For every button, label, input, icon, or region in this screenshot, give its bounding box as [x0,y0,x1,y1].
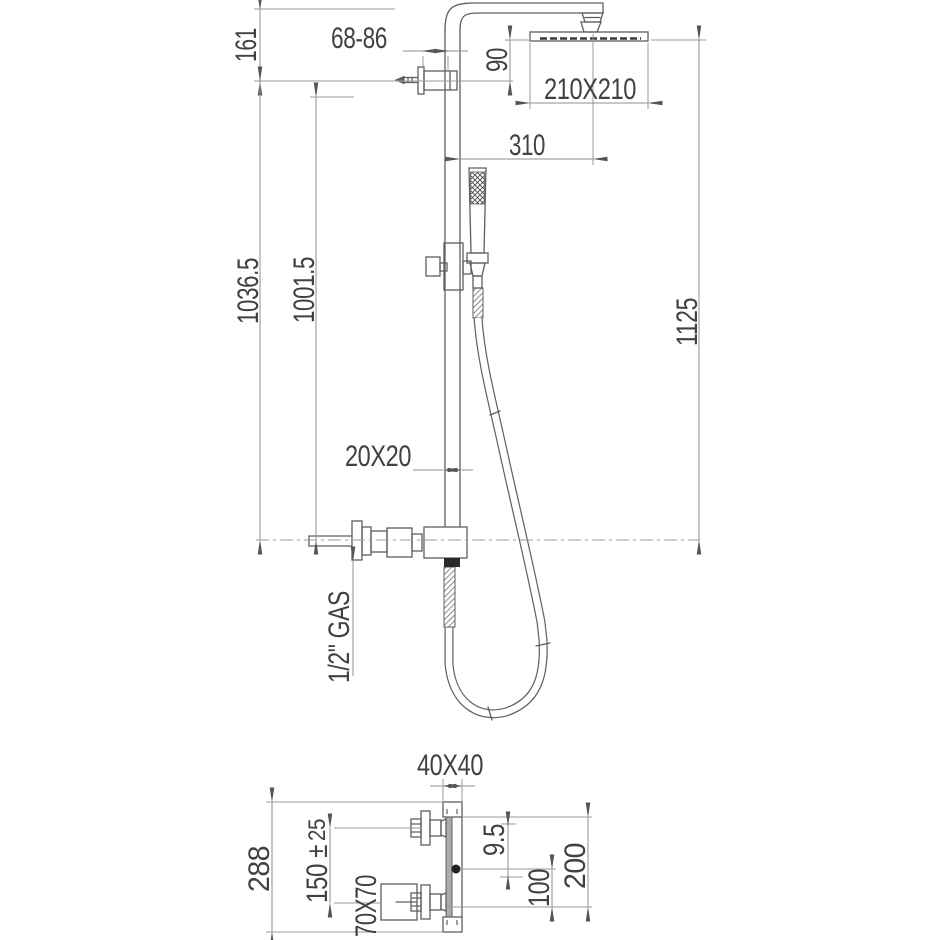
hand-shower [467,168,488,318]
dimension-310: 310 [460,129,593,162]
front-view-dimensions: 161 1036.5 1001.5 68-86 90 210X210 [230,9,706,683]
hand-shower-face [471,172,485,204]
dimension-90: 90 [481,40,514,81]
dimension-200: 200 [559,817,592,907]
dim-label-40x40: 40X40 [417,749,483,782]
diverter-valve [309,521,467,567]
dimension-40x40: 40X40 [417,749,483,786]
dim-label-210x210: 210X210 [544,73,636,106]
dimension-20x20: 20X20 [345,440,473,473]
dimension-70x70: 70X70 [350,875,383,937]
hose-ribbed-top [473,288,483,318]
dim-label-1036_5: 1036.5 [232,258,265,324]
dimension-half-inch-gas: 1/2" GAS [323,561,356,683]
dimension-288: 288 [243,802,276,932]
dim-label-1125: 1125 [671,298,704,346]
dim-label-161: 161 [230,28,263,62]
vertical-column [445,29,460,527]
dim-label-9_5: 9.5 [478,824,511,856]
shower-column-front-view [309,3,648,720]
hose-nut [444,558,460,567]
dimension-1001_5: 1001.5 [288,97,321,540]
rain-shower-head [530,32,648,41]
slider-holder [426,243,471,290]
column-bottom-cap [443,917,462,932]
shower-arm [445,3,603,30]
dim-label-150: 150 ± [301,845,334,903]
dimension-150-plus-minus-25: 150 ± 25 [301,819,334,903]
drawing-page: 161 1036.5 1001.5 68-86 90 210X210 [0,0,940,940]
dim-label-20x20: 20X20 [345,440,411,473]
dim-label-68-86: 68-86 [331,22,387,55]
dim-label-90: 90 [481,48,514,72]
technical-drawing-canvas: 161 1036.5 1001.5 68-86 90 210X210 [0,0,940,940]
dimension-161: 161 [230,10,263,81]
dim-label-1001_5: 1001.5 [288,257,321,323]
dim-label-gas: 1/2" GAS [323,591,356,683]
dimension-1036_5: 1036.5 [232,81,265,540]
column-top-cap [443,802,462,817]
dim-label-310: 310 [509,129,545,162]
dimension-68-86: 68-86 [331,22,468,55]
wall-plate [446,817,452,917]
dimension-210x210: 210X210 [530,73,648,106]
dim-label-25: 25 [304,819,331,841]
dim-label-288: 288 [243,846,276,892]
dim-label-200: 200 [559,843,592,889]
dimension-100: 100 [523,869,556,907]
dim-label-70x70: 70X70 [350,875,383,937]
bottom-plan-view [381,802,462,932]
dimension-1125: 1125 [671,40,704,540]
outlet [452,865,461,874]
hose-ribbed-bottom [444,567,455,627]
ball-joint [581,13,603,32]
dim-label-100: 100 [523,869,556,907]
